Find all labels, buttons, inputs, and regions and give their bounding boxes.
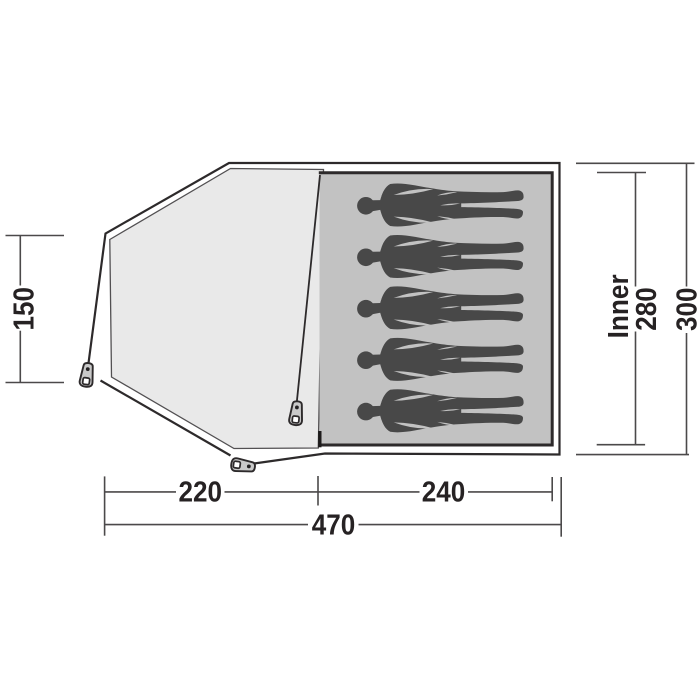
svg-text:150: 150 (8, 287, 40, 331)
svg-text:220: 220 (179, 477, 223, 509)
svg-text:300: 300 (672, 288, 700, 332)
svg-text:470: 470 (312, 510, 356, 542)
svg-text:240: 240 (422, 477, 466, 509)
